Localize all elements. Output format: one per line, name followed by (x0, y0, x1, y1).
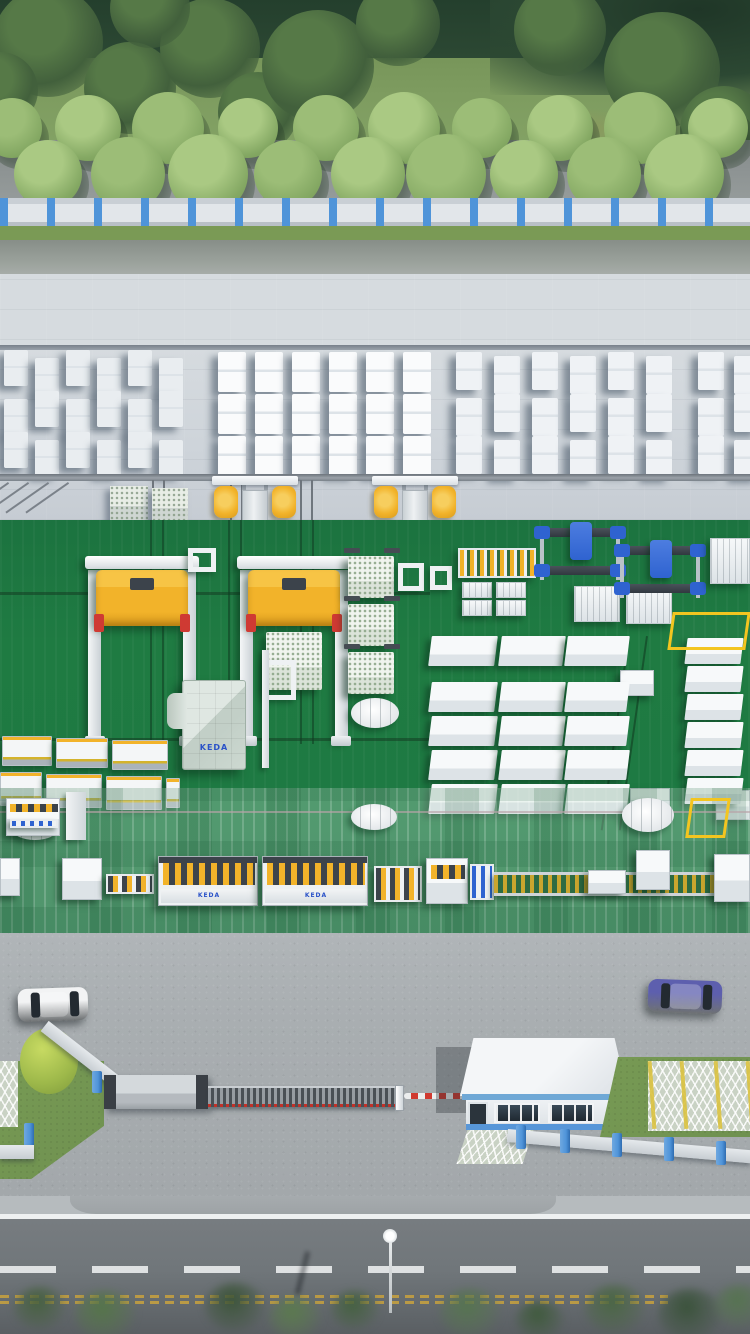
yard-rail-diagonal (5, 482, 49, 513)
turntable (622, 798, 674, 832)
trolley-bar (384, 644, 400, 649)
brand-label: KEDA (183, 743, 245, 752)
line-machine (62, 858, 102, 900)
block-stack (292, 394, 320, 434)
guardhouse-roof (460, 1038, 628, 1096)
brand-label: KEDA (161, 892, 257, 899)
block-stack (255, 436, 283, 476)
block-stack (403, 394, 431, 434)
curing-car-box (428, 716, 498, 746)
zone-block-storage-yard (0, 274, 750, 520)
hoist-unit (650, 540, 672, 578)
beam-cap-blue (614, 582, 630, 595)
blurred-tree (205, 1283, 265, 1331)
trolley-bar (344, 548, 360, 553)
block-stack (366, 352, 394, 392)
blurred-tree (75, 1291, 135, 1334)
checker-conveyor (374, 866, 422, 902)
block-stack (698, 436, 724, 474)
conveyor-table (56, 738, 108, 768)
streetlight-pole (389, 1241, 392, 1313)
line-machine (714, 854, 750, 902)
block-stack (570, 440, 596, 478)
checker-conveyor (106, 874, 154, 894)
block-stack (734, 440, 750, 478)
blurred-tree (585, 1285, 645, 1333)
blurred-tree (14, 1287, 66, 1329)
zone-front-yard (0, 933, 750, 1219)
block-stack (255, 352, 283, 392)
line-machine (636, 850, 670, 890)
block-stack (608, 398, 634, 436)
driveway-mouth (70, 1196, 556, 1214)
lattice-path (0, 1061, 18, 1127)
turntable (351, 698, 399, 728)
support-frame (398, 563, 424, 591)
car-roof (668, 983, 701, 1009)
tray-machine (462, 600, 492, 616)
zone-access-road-north (0, 240, 750, 274)
beam-cap-blue (614, 544, 630, 557)
guardhouse-window (494, 1103, 540, 1123)
yellow-marked-area (685, 798, 731, 838)
blurred-tree (516, 1301, 564, 1334)
cutting-line-machine: KEDA (158, 856, 258, 906)
curing-car-box (684, 750, 743, 776)
block-stack (698, 352, 724, 390)
car-windshield (661, 983, 671, 1008)
blue-gantry-crane (616, 538, 704, 604)
dosing-machine: KEDA (182, 680, 246, 770)
green-cake (348, 604, 394, 646)
gate-end-post (395, 1085, 404, 1111)
car-windshield (30, 992, 40, 1017)
curing-car-box (428, 636, 498, 666)
trolley-bar (384, 596, 400, 601)
gate-red-trim (208, 1104, 396, 1107)
machine-base: KEDA (161, 889, 257, 903)
pillar-cap (104, 1075, 116, 1109)
block-stack (97, 440, 121, 476)
block-stack (329, 394, 357, 434)
gantry-red-block (180, 614, 190, 632)
block-stack (570, 356, 596, 394)
carrier-clamp-left (374, 486, 398, 518)
gantry-red-block (246, 614, 256, 632)
block-stack (456, 398, 482, 436)
block-stack (366, 436, 394, 476)
carrier-beam (372, 476, 458, 485)
car-rear-window (702, 985, 712, 1010)
conveyor-table (2, 736, 52, 766)
turntable (351, 804, 397, 830)
green-cake (348, 556, 394, 598)
block-stack (646, 356, 672, 394)
yard-rail-v (300, 480, 302, 520)
block-stack (734, 394, 750, 432)
block-stack (608, 436, 634, 474)
block-stack (646, 394, 672, 432)
curing-car-box (498, 750, 566, 780)
line-machine (0, 858, 20, 896)
retractable-gate (208, 1086, 396, 1107)
factory-aerial-scene: KEDA KEDAKEDA (0, 0, 750, 1334)
blurred-tree (440, 1289, 500, 1334)
block-stack (159, 358, 183, 394)
block-stack (532, 436, 558, 474)
mould-teeth (267, 863, 365, 885)
trolley-bar (344, 644, 360, 649)
pallet-stack (110, 486, 148, 522)
support-frame (188, 548, 216, 572)
carrier-cab (242, 490, 268, 522)
block-stack (403, 352, 431, 392)
curing-car-box (564, 716, 630, 746)
guardhouse-window (548, 1103, 594, 1123)
block-stack (128, 399, 152, 435)
yellow-marked-area (667, 612, 750, 650)
trolley-bar (384, 548, 400, 553)
block-stack (66, 350, 90, 386)
zone-greenbelt (0, 0, 750, 240)
block-stack (456, 436, 482, 474)
block-stack (255, 394, 283, 434)
gantry-crane (240, 556, 348, 746)
curing-car-box (498, 716, 566, 746)
yard-rail-diagonal (25, 482, 69, 513)
block-stack (4, 350, 28, 386)
fence-post (612, 1133, 622, 1157)
slat-conveyor (458, 548, 536, 578)
line-machine (588, 870, 626, 894)
conveyor-stripe-blue (10, 819, 58, 828)
car-roof (37, 991, 69, 1017)
curing-car-box (498, 682, 566, 712)
tray-machine (462, 582, 492, 598)
blurred-tree (331, 1291, 379, 1329)
block-stack (128, 432, 152, 468)
block-stack (128, 350, 152, 386)
zone-production-floor: KEDA KEDAKEDA (0, 520, 750, 933)
block-stack (159, 391, 183, 427)
curing-car-box (564, 636, 630, 666)
gantry-beam (237, 556, 351, 569)
gantry-hoist (96, 570, 188, 626)
blue-lift (470, 864, 494, 900)
lane-dash-line (0, 1266, 750, 1273)
curing-car-box (428, 750, 498, 780)
gantry-hoist (248, 570, 340, 626)
block-stack (218, 394, 246, 434)
block-stack (494, 394, 520, 432)
carrier-cab (402, 490, 428, 522)
block-stack (494, 440, 520, 478)
block-stack (159, 440, 183, 476)
beam-cap-blue (534, 564, 550, 577)
streetlight-head (383, 1229, 397, 1243)
block-stack (97, 358, 121, 394)
curing-car-box (684, 694, 743, 720)
cutter-teeth (431, 865, 465, 879)
carrier-clamp-right (432, 486, 456, 518)
yard-joint-line (0, 345, 750, 350)
cutting-line-machine: KEDA (262, 856, 368, 906)
block-stack (97, 391, 121, 427)
fence-stub-left (0, 1145, 34, 1159)
carrier-beam (212, 476, 298, 485)
fence-post (24, 1123, 34, 1147)
hoist-window (130, 578, 154, 590)
block-stack (4, 432, 28, 468)
fence-post (92, 1071, 102, 1093)
tray-machine (496, 600, 526, 616)
block-stack (570, 394, 596, 432)
hoist-window (282, 578, 306, 590)
beam-cap-blue (690, 582, 706, 595)
block-stack (35, 358, 59, 394)
block-stack (218, 352, 246, 392)
block-stack (646, 440, 672, 478)
carrier-clamp-left (214, 486, 238, 518)
packing-conveyor (6, 798, 60, 836)
block-stack (494, 356, 520, 394)
beam-cap-blue (690, 544, 706, 557)
block-stack (608, 352, 634, 390)
purple-car (647, 979, 722, 1015)
block-stack (329, 436, 357, 476)
yard-rail-v (311, 480, 313, 520)
block-stack (4, 399, 28, 435)
brand-label: KEDA (265, 892, 367, 899)
fence-post (560, 1129, 570, 1153)
gantry-foot (331, 736, 351, 746)
beam-cap-blue (534, 526, 550, 539)
block-stack (292, 352, 320, 392)
block-stack (456, 352, 482, 390)
gantry-beam (85, 556, 199, 569)
trolley-bar (344, 596, 360, 601)
block-stack (329, 352, 357, 392)
block-stack (734, 356, 750, 394)
support-frame (430, 566, 452, 590)
parking-pad (648, 1061, 750, 1131)
blue-gantry-crane (536, 520, 624, 586)
fence-post (516, 1125, 526, 1149)
curing-car-box (428, 682, 498, 712)
streetlight-shadow (295, 1251, 310, 1295)
gantry-red-block (94, 614, 104, 632)
block-stack (35, 391, 59, 427)
green-cake (348, 652, 394, 694)
curing-car-box (684, 722, 743, 748)
block-stack (366, 394, 394, 434)
curing-car-box (564, 682, 630, 712)
block-stack (698, 398, 724, 436)
machine-duct (167, 693, 187, 729)
curing-car-box (498, 636, 566, 666)
block-stack (66, 432, 90, 468)
block-stack (292, 436, 320, 476)
perimeter-fence-north (0, 198, 750, 226)
cutting-machine (426, 858, 468, 904)
mould-teeth (163, 863, 255, 885)
machine-base: KEDA (265, 889, 367, 903)
tray-machine (496, 582, 526, 598)
blurred-tree (269, 1297, 321, 1334)
blurred-tree (658, 1289, 722, 1334)
block-stack (35, 440, 59, 476)
block-stack (403, 436, 431, 476)
white-car (17, 987, 88, 1022)
curing-car-box (564, 750, 630, 780)
fence-post (716, 1141, 726, 1165)
support-post (262, 650, 269, 768)
edge-conveyor (710, 538, 750, 584)
curing-car-box (684, 666, 743, 692)
carrier-clamp-right (272, 486, 296, 518)
car-rear-window (69, 991, 79, 1016)
gantry-red-block (332, 614, 342, 632)
conveyor-table (112, 740, 168, 770)
fence-post (664, 1137, 674, 1161)
pallet-stack (152, 488, 188, 524)
block-stack (532, 352, 558, 390)
sliding-gate-pillar (104, 1075, 208, 1109)
pillar-cap (196, 1075, 208, 1109)
block-stack (218, 436, 246, 476)
hoist-unit (570, 522, 592, 560)
lift-tower (66, 792, 86, 840)
block-stack (66, 399, 90, 435)
block-stack (532, 398, 558, 436)
conveyor-stripe-yellow (10, 804, 58, 812)
